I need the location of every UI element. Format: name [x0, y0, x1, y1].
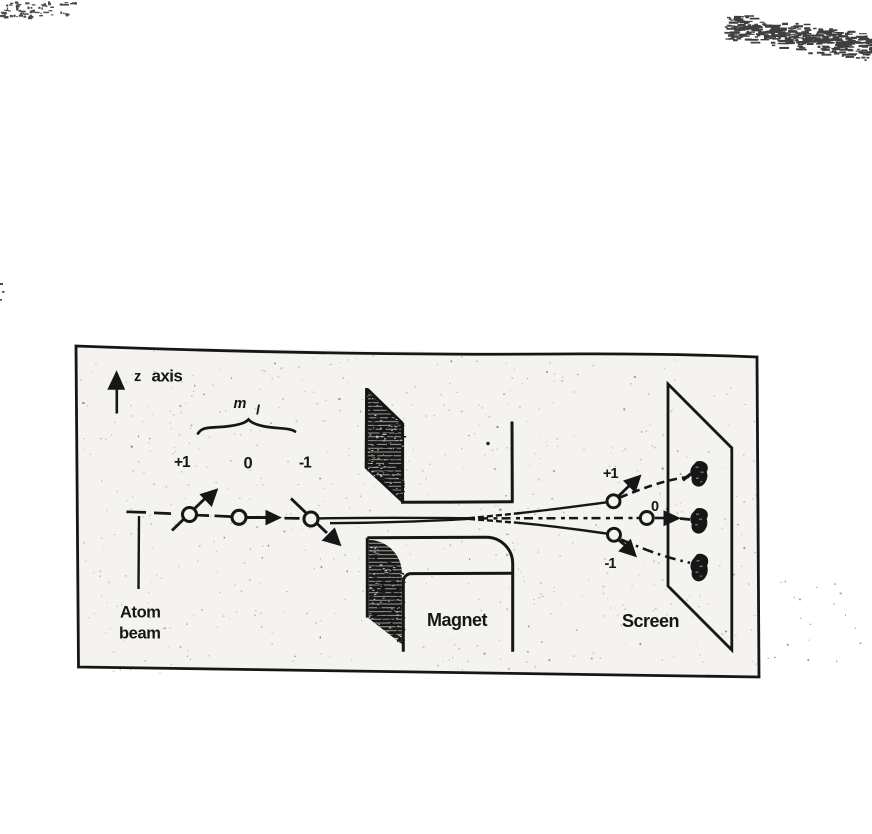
svg-text:+1: +1 — [174, 454, 191, 471]
svg-text:beam: beam — [119, 625, 161, 643]
svg-text:axis: axis — [152, 367, 183, 386]
svg-text:0: 0 — [244, 455, 253, 473]
svg-text:z: z — [134, 369, 141, 385]
svg-text:Magnet: Magnet — [427, 610, 488, 630]
svg-text:+1: +1 — [603, 466, 618, 482]
svg-text:Atom: Atom — [120, 604, 161, 622]
svg-text:Screen: Screen — [622, 611, 679, 631]
svg-text:-1: -1 — [605, 556, 617, 572]
svg-text:m: m — [234, 396, 247, 412]
svg-text:-1: -1 — [299, 455, 312, 472]
svg-text:l: l — [256, 403, 260, 418]
